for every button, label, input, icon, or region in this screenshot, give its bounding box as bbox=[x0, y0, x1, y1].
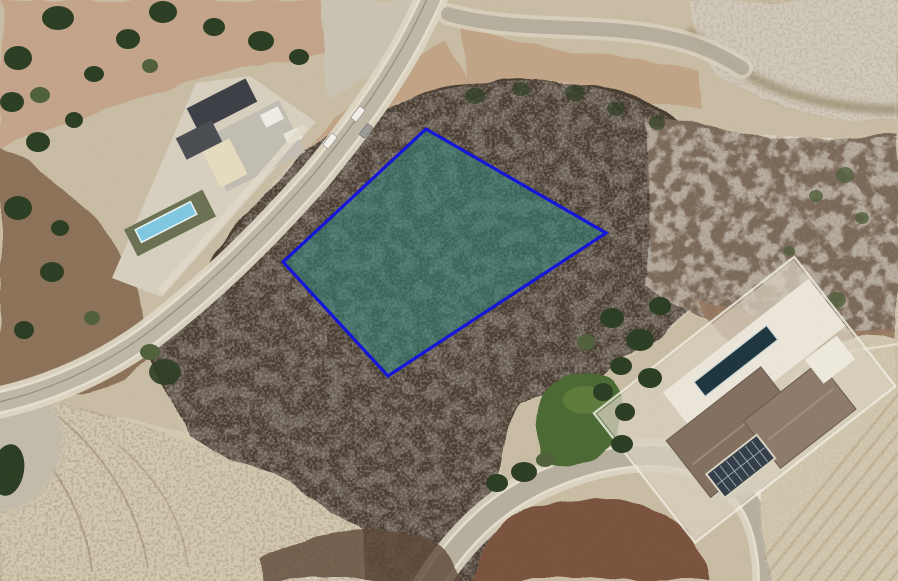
photo-grain bbox=[0, 0, 898, 581]
satellite-map bbox=[0, 0, 898, 581]
satellite-image bbox=[0, 0, 898, 581]
